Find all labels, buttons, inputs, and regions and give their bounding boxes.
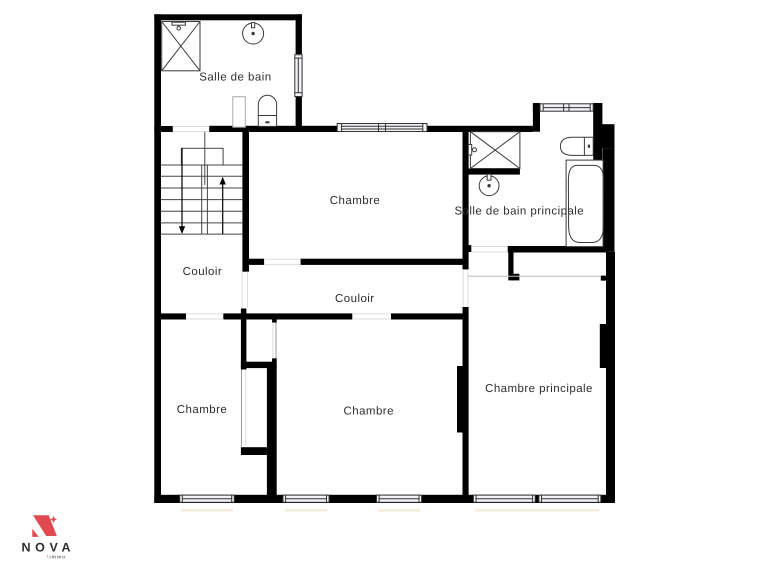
svg-text:Salle de bain principale: Salle de bain principale: [454, 205, 584, 217]
svg-text:Chambre: Chambre: [343, 405, 393, 417]
svg-text:Couloir: Couloir: [335, 293, 375, 305]
svg-text:NOVA: NOVA: [22, 541, 76, 555]
svg-text:Chambre principale: Chambre principale: [485, 383, 593, 395]
svg-text:Salle de bain: Salle de bain: [199, 71, 271, 83]
svg-text:Chambre: Chambre: [330, 195, 380, 207]
svg-text:\immo: \immo: [47, 555, 66, 561]
svg-text:Couloir: Couloir: [183, 266, 223, 278]
svg-text:Chambre: Chambre: [177, 404, 227, 416]
